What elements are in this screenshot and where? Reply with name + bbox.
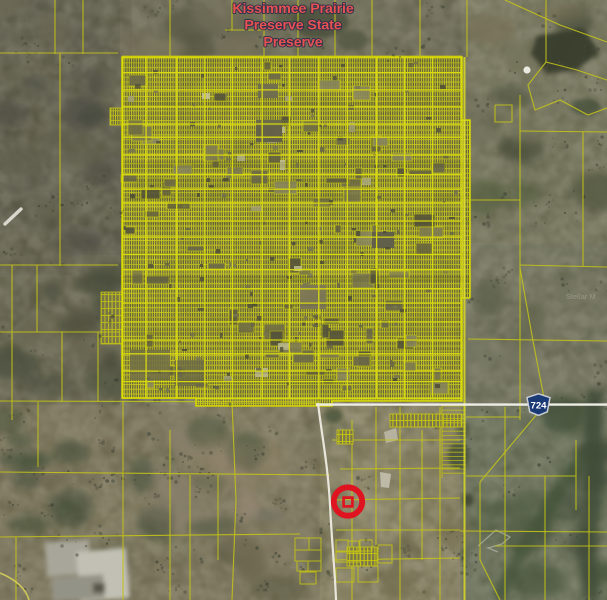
svg-text:Preserve: Preserve — [263, 34, 322, 50]
svg-text:Preserve State: Preserve State — [244, 17, 341, 33]
svg-text:Kissimmee Prairie: Kissimmee Prairie — [232, 1, 354, 17]
svg-text:Stellar M: Stellar M — [566, 292, 596, 301]
svg-text:724: 724 — [530, 400, 547, 411]
